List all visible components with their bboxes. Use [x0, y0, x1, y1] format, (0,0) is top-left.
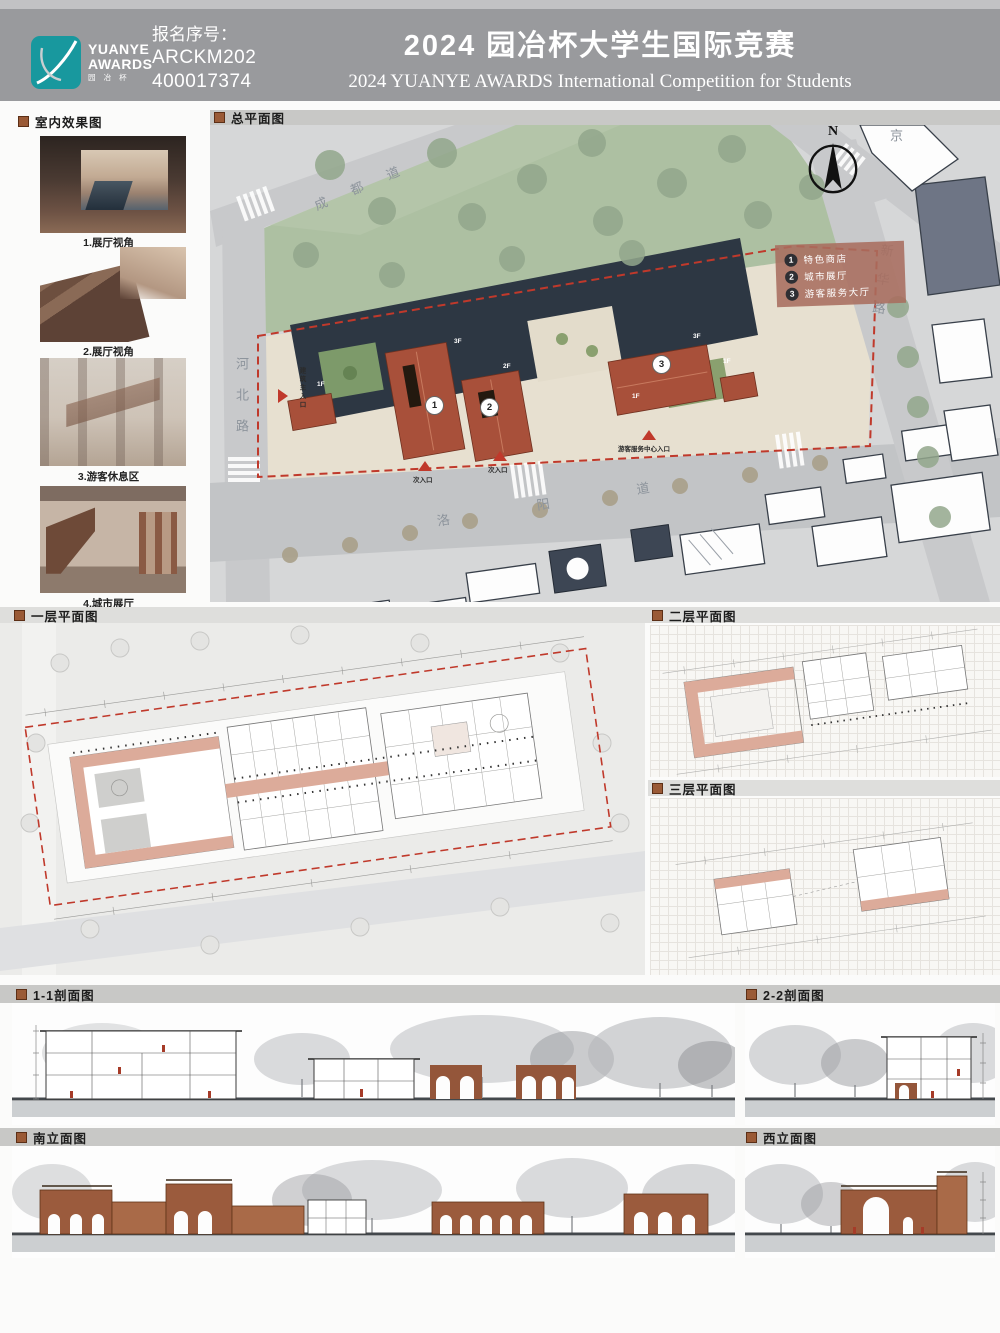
road-label-jing: 京 [890, 125, 903, 144]
section-bullet-icon [16, 1132, 27, 1143]
visitor-entrance-label: 游客服务中心入口 [618, 443, 670, 453]
west-elevation-drawing [745, 1146, 995, 1258]
header-top-strip [0, 0, 1000, 9]
competition-poster: YUANYE AWARDS 园 冶 杯 报名序号： ARCKM202 40001… [0, 0, 1000, 1333]
logo-line2: AWARDS [88, 57, 152, 72]
west-elevation-header: 西立面图 [742, 1128, 817, 1146]
building-marker-3: 3 [652, 355, 671, 374]
floor-tag: 1F [723, 358, 731, 365]
siteplan-section-header: 总平面图 [210, 110, 1000, 125]
reg-number-line2: 400017374 [152, 70, 256, 94]
poster-header: YUANYE AWARDS 园 冶 杯 报名序号： ARCKM202 40001… [0, 9, 1000, 101]
interior-section-header: 室内效果图 [14, 113, 103, 129]
building-marker-1: 1 [425, 396, 444, 415]
section11-header: 1-1剖面图 [12, 985, 95, 1003]
floor-tag: 3F [454, 338, 462, 345]
legend-row: 3 游客服务大厅 [785, 283, 905, 301]
legend-number-3: 3 [785, 287, 798, 300]
south-elevation-header: 南立面图 [12, 1128, 87, 1146]
section22-title: 2-2剖面图 [763, 985, 825, 1004]
interior-caption-2: 2.展厅视角 [12, 344, 205, 359]
plan2-title: 二层平面图 [669, 606, 737, 625]
sections-band: 1-1剖面图 2-2剖面图 [0, 985, 1000, 1003]
poster-title-cn: 2024 园冶杯大学生国际竞赛 [280, 22, 920, 64]
reg-label: 报名序号： [152, 24, 256, 46]
interior-render-4 [40, 486, 186, 593]
first-floor-plan-drawing [0, 623, 645, 975]
interior-caption-3: 3.游客休息区 [12, 469, 205, 484]
secondary-entrance-label-1: 次入口 [413, 474, 433, 484]
siteplan-legend: 1 特色商店 2 城市展厅 3 游客服务大厅 [775, 241, 906, 307]
south-elevation-title: 南立面图 [33, 1128, 87, 1147]
third-floor-plan [650, 798, 1000, 975]
section-bullet-icon [214, 112, 225, 123]
reg-number-line1: ARCKM202 [152, 46, 256, 70]
interior-render-1 [40, 136, 186, 233]
floor-tag: 1F [317, 381, 325, 388]
logo-cn: 园 冶 杯 [88, 74, 152, 82]
floor-tag: 2F [503, 363, 511, 370]
south-elevation-panel [12, 1146, 735, 1258]
section-1-1-drawing [12, 1003, 735, 1125]
legend-number-2: 2 [785, 270, 798, 283]
section22-header: 2-2剖面图 [742, 985, 825, 1003]
poster-title-en: 2024 YUANYE AWARDS International Competi… [280, 71, 920, 93]
section-2-2-drawing [745, 1003, 995, 1125]
legend-row: 1 特色商店 [784, 249, 904, 267]
secondary-entrance-arrow-icon [493, 451, 507, 461]
interior-render-2 [40, 247, 186, 342]
main-entrance-arrow-icon [278, 389, 288, 403]
plan3-section-header: 三层平面图 [648, 780, 1000, 796]
yuanye-logo-icon [31, 36, 81, 89]
secondary-entrance-label-2: 次入口 [488, 464, 508, 474]
west-elevation-title: 西立面图 [763, 1128, 817, 1147]
logo-line1: YUANYE [88, 42, 152, 57]
logo-swoosh-icon [31, 36, 81, 89]
section-bullet-icon [14, 610, 25, 621]
section-bullet-icon [16, 989, 27, 1000]
plan1-section-header: 一层平面图 [0, 607, 655, 623]
secondary-entrance-arrow-icon [418, 461, 432, 471]
plan2-section-header: 二层平面图 [648, 607, 1000, 623]
title-block: 2024 园冶杯大学生国际竞赛 2024 YUANYE AWARDS Inter… [280, 9, 920, 93]
west-elevation-panel [745, 1146, 995, 1258]
section-bullet-icon [746, 989, 757, 1000]
section-bullet-icon [652, 610, 663, 621]
legend-label-2: 城市展厅 [804, 268, 848, 284]
registration-block: 报名序号： ARCKM202 400017374 [152, 24, 256, 94]
section-2-2-panel [745, 1003, 995, 1125]
legend-number-1: 1 [784, 253, 797, 266]
interior-render-3 [40, 358, 186, 466]
section-bullet-icon [18, 116, 29, 127]
plan1-title: 一层平面图 [31, 606, 99, 625]
north-label: N [802, 125, 864, 139]
section-bullet-icon [652, 783, 663, 794]
interior-section-title: 室内效果图 [35, 112, 103, 131]
section-1-1-panel [12, 1003, 735, 1125]
section-bullet-icon [746, 1132, 757, 1143]
main-entrance-label: 建筑主入口 [296, 367, 306, 433]
south-elevation-drawing [12, 1146, 735, 1258]
visitor-entrance-arrow-icon [642, 430, 656, 440]
legend-row: 2 城市展厅 [785, 266, 905, 284]
section11-title: 1-1剖面图 [33, 985, 95, 1004]
floor-tag: 3F [693, 333, 701, 340]
legend-label-1: 特色商店 [803, 251, 847, 267]
second-floor-plan [650, 625, 1000, 777]
plan3-title: 三层平面图 [669, 779, 737, 798]
third-floor-plan-drawing [650, 798, 1000, 975]
logo-wordmark: YUANYE AWARDS 园 冶 杯 [88, 42, 152, 82]
building-marker-2: 2 [480, 398, 499, 417]
first-floor-plan [0, 623, 645, 975]
north-arrow-icon [804, 139, 862, 197]
second-floor-plan-drawing [650, 625, 1000, 777]
elevations-band: 南立面图 西立面图 [0, 1128, 1000, 1146]
floor-tag: 1F [632, 393, 640, 400]
road-label-hebei: 河北路 [232, 357, 251, 477]
site-plan-map: 成都道 河北路 洛阳道 新华路 京 1 特色商店 2 城市展厅 3 游客服务大厅… [210, 125, 1000, 602]
legend-label-3: 游客服务大厅 [804, 284, 870, 300]
north-arrow: N [802, 125, 864, 202]
